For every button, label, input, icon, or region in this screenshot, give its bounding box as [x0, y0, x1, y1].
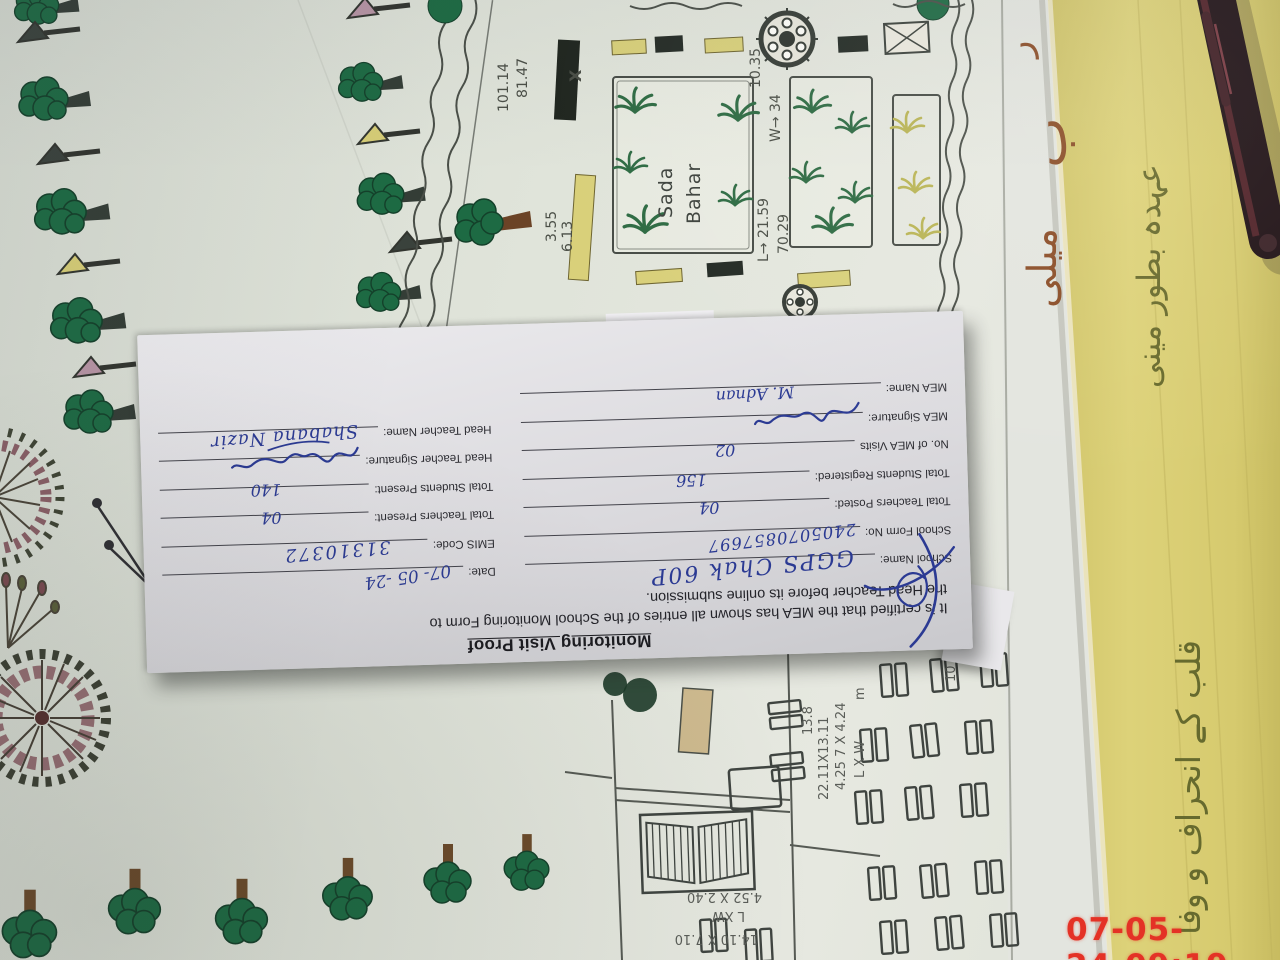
map-measurement: L X W: [853, 741, 868, 778]
tree-icon: [455, 199, 532, 245]
handwritten-value: 07- 05 -24: [363, 560, 452, 593]
field-mea-name: MEA Name: M. Adnan: [520, 381, 947, 411]
tree-icon: [339, 63, 404, 102]
garden-name: Bahar: [683, 163, 705, 224]
bench: [612, 39, 647, 55]
urdu-text: میلی: [1020, 228, 1066, 308]
camera-timestamp: 07-05-2409:19: [1066, 912, 1280, 960]
field-teachers-posted: Total Teachers Posted: 04: [524, 495, 951, 525]
handwritten-value: 156: [676, 470, 707, 490]
flag-marker-icon: [74, 357, 136, 377]
monitoring-form: Monitoring Visit Proof It is certified t…: [137, 311, 973, 673]
field-mea-visits: No. of MEA Visits 02: [522, 438, 949, 468]
thistle-sketch: [2, 573, 59, 648]
urdu-text: ب: [1016, 117, 1079, 168]
hedge-bar: [707, 261, 744, 277]
map-measurement: 10.35: [748, 48, 764, 88]
field-line: 156: [523, 470, 810, 495]
garden-bed-sadabahar: Sada Bahar: [613, 77, 758, 253]
field-teachers-present: Total Teachers Present: 04: [161, 508, 495, 535]
wheel-icon: [756, 8, 818, 70]
field-line: 04: [161, 512, 370, 535]
garden-name: Sada: [655, 167, 677, 218]
hedge-bar: [655, 35, 684, 52]
map-measurement: 4.52 X 2.40: [687, 889, 762, 904]
garden-bed-2: [790, 77, 872, 247]
shrub: [603, 672, 627, 696]
tree-icon: [424, 844, 471, 903]
map-measurement: 101.14: [496, 63, 512, 112]
tree-row-mid: [339, 0, 452, 311]
map-measurement: 22.11X13.11: [817, 717, 832, 800]
bench: [705, 37, 744, 53]
field-label: Head Teacher Signature:: [360, 451, 492, 467]
flag-marker-icon: [58, 254, 120, 274]
field-label: No. of MEA Visits: [855, 438, 949, 453]
tree-icon: [2, 890, 56, 958]
path-slab: [679, 688, 713, 754]
field-label: Date:: [463, 565, 496, 578]
envelope-icon: [884, 22, 930, 54]
map-measurement: L XW: [712, 908, 745, 923]
hedge-bar: [838, 35, 869, 53]
field-label: Total Teachers Posted:: [829, 495, 950, 511]
map-measurement: W→ 34: [768, 94, 784, 142]
handwritten-value: 02: [715, 441, 736, 461]
tree-icon: [504, 834, 549, 890]
field-line: 07- 05 -24: [162, 566, 463, 592]
flag-marker-icon: [348, 0, 410, 18]
bench: [636, 268, 683, 284]
map-measurement: 4.25 7 X 4.24: [834, 703, 849, 790]
tree-icon: [357, 273, 422, 312]
field-date: Date: 07- 05 -24: [162, 565, 496, 592]
table-sketch: [729, 766, 782, 809]
form-fields: School Name: GGPS Chak 60P Date: 07- 05 …: [157, 381, 952, 592]
tree-icon: [19, 77, 91, 120]
signature-flourish: [857, 527, 973, 652]
field-mea-signature: MEA Signature:: [521, 409, 948, 439]
map-measurement: 81.47: [515, 58, 531, 98]
field-line: GGPS Chak 60P: [526, 554, 876, 581]
wheel-icon: [784, 286, 816, 318]
map-measurement: 6.13: [560, 221, 576, 252]
field-label: MEA Signature:: [863, 409, 948, 424]
field-label: Total Students Registered:: [810, 466, 950, 482]
map-measurement: 13.8: [801, 706, 816, 735]
tree-icon: [109, 869, 161, 934]
field-label: Total Teachers Present:: [369, 508, 494, 524]
tree-row-left: [15, 0, 136, 433]
flag-marker-icon: [38, 144, 100, 164]
tree-icon: [15, 0, 80, 24]
field-line: 02: [522, 440, 855, 467]
map-measurement: 14.10 X 7.10: [675, 931, 758, 946]
timestamp-time: 09:19: [1125, 948, 1229, 960]
field-students-present: Total Students Present: 140: [160, 480, 494, 507]
field-head-teacher-signature: Head Teacher Signature:: [159, 451, 493, 478]
walkway: [395, 0, 492, 357]
map-measurement: 70.29: [776, 214, 792, 254]
tree-icon: [428, 0, 462, 23]
tree-icon: [323, 858, 372, 920]
flower-wheel-icon: [0, 431, 60, 563]
tree-icon: [64, 390, 136, 433]
map-measurement: X: [566, 69, 585, 82]
tree-row-bottom: [2, 834, 548, 957]
flag-marker-icon: [358, 124, 420, 144]
tree-icon: [216, 879, 268, 944]
field-line: 140: [160, 483, 370, 506]
field-students-registered: Total Students Registered: 156: [523, 466, 950, 496]
field-line: 04: [524, 498, 830, 524]
field-line: [159, 455, 361, 478]
flag-marker-icon: [18, 22, 80, 42]
urdu-text: ر: [998, 41, 1039, 60]
map-measurement: 3.55: [544, 211, 560, 242]
map-measurement: m: [853, 687, 868, 700]
gate: [640, 811, 755, 893]
tree-icon: [51, 298, 127, 343]
tree-icon: [35, 189, 111, 234]
handwritten-value: 04: [261, 508, 282, 528]
shrub: [623, 678, 657, 712]
field-label: EMIS Code:: [428, 537, 495, 551]
field-line: 31310372: [161, 539, 428, 564]
field-label: MEA Name:: [881, 381, 948, 395]
photo: Sada Bahar: [0, 0, 1280, 960]
field-line: [521, 412, 863, 439]
field-label: Head Teacher Name:: [378, 423, 492, 438]
tree-icon: [357, 173, 425, 214]
urdu-text: عہدہ بطور مینی: [1130, 164, 1168, 388]
field-label: Total Students Present:: [369, 480, 493, 496]
urdu-text: قلب کے انحراف و وفا: [1169, 640, 1208, 935]
mandala-icon: [0, 654, 106, 782]
handwritten-value: 140: [251, 480, 282, 500]
map-measurement: L→ 21.59: [756, 198, 772, 262]
handwritten-value: 04: [699, 498, 720, 518]
handwritten-value: 31310372: [282, 536, 391, 566]
